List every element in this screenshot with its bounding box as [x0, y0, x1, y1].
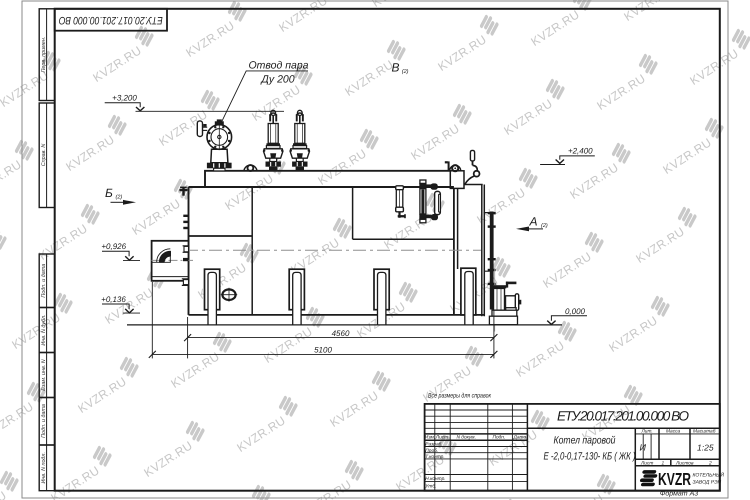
svg-text:Н.контр.: Н.контр. [425, 476, 445, 482]
svg-text:Масса: Масса [666, 429, 681, 435]
svg-text:+0,136: +0,136 [101, 295, 126, 304]
svg-text:+3,200: +3,200 [112, 94, 137, 103]
svg-text:(2): (2) [541, 223, 548, 229]
svg-text:Разраб.: Разраб. [425, 442, 442, 448]
svg-text:Подп.: Подп. [493, 435, 506, 441]
svg-text:КОТЕЛЬНЫЙ: КОТЕЛЬНЫЙ [693, 472, 725, 479]
svg-text:Лит.: Лит. [641, 429, 653, 435]
svg-text:4560: 4560 [332, 329, 350, 338]
svg-text:Т.контр.: Т.контр. [425, 454, 444, 460]
svg-text:2: 2 [708, 460, 712, 466]
svg-text:Масштаб: Масштаб [693, 429, 716, 435]
svg-text:Справ. N: Справ. N [41, 144, 47, 167]
svg-text:ЕТУ.20.017.201.00.000 ВО: ЕТУ.20.017.201.00.000 ВО [58, 14, 162, 26]
svg-text:Ду 200: Ду 200 [260, 74, 294, 86]
svg-text:Е -2,0-0,17-130- КБ ( ЖК ): Е -2,0-0,17-130- КБ ( ЖК ) [544, 450, 636, 462]
svg-text:(2): (2) [116, 195, 123, 201]
svg-text:5100: 5100 [314, 346, 332, 355]
svg-text:1: 1 [662, 460, 665, 466]
svg-text:ЕТУ.20.017.201.00.000 ВО: ЕТУ.20.017.201.00.000 ВО [557, 409, 689, 424]
svg-text:В: В [392, 61, 400, 75]
svg-text:KVZR: KVZR [658, 469, 691, 489]
svg-text:0,000: 0,000 [565, 307, 586, 316]
svg-text:Изм.: Изм. [425, 435, 435, 441]
svg-text:Б: Б [105, 186, 113, 200]
svg-text:(2): (2) [402, 69, 409, 75]
svg-text:Формат А3: Формат А3 [660, 490, 698, 497]
svg-text:Проб.: Проб. [425, 448, 438, 454]
svg-text:А: А [529, 215, 538, 229]
svg-text:Лист: Лист [435, 435, 448, 441]
svg-text:Перв. примен.: Перв. примен. [41, 37, 47, 73]
svg-text:N докум.: N докум. [457, 435, 476, 441]
svg-text:Подп. и дата: Подп. и дата [41, 404, 47, 438]
svg-text:Лист: Лист [640, 460, 653, 466]
svg-text:И: И [640, 443, 647, 453]
svg-text:Все размеры для справок: Все размеры для справок [428, 393, 492, 400]
svg-text:Подп. и дата: Подп. и дата [41, 264, 47, 298]
svg-text:ЗАВОД РЭП: ЗАВОД РЭП [693, 480, 722, 486]
svg-text:Котел паровой: Котел паровой [554, 434, 616, 446]
svg-text:Утб.: Утб. [425, 484, 436, 490]
svg-text:+2,400: +2,400 [568, 146, 593, 155]
svg-text:+0,926: +0,926 [101, 242, 126, 251]
svg-text:Листов: Листов [675, 460, 694, 466]
svg-text:Инв. N дубл.: Инв. N дубл. [41, 314, 47, 345]
svg-text:Отвод пара: Отвод пара [248, 60, 308, 72]
svg-text:Инв. N подл.: Инв. N подл. [41, 452, 47, 484]
svg-text:1:25: 1:25 [697, 443, 714, 453]
svg-text:Взам. инв. N: Взам. инв. N [41, 359, 47, 391]
svg-text:Дата: Дата [513, 435, 527, 441]
